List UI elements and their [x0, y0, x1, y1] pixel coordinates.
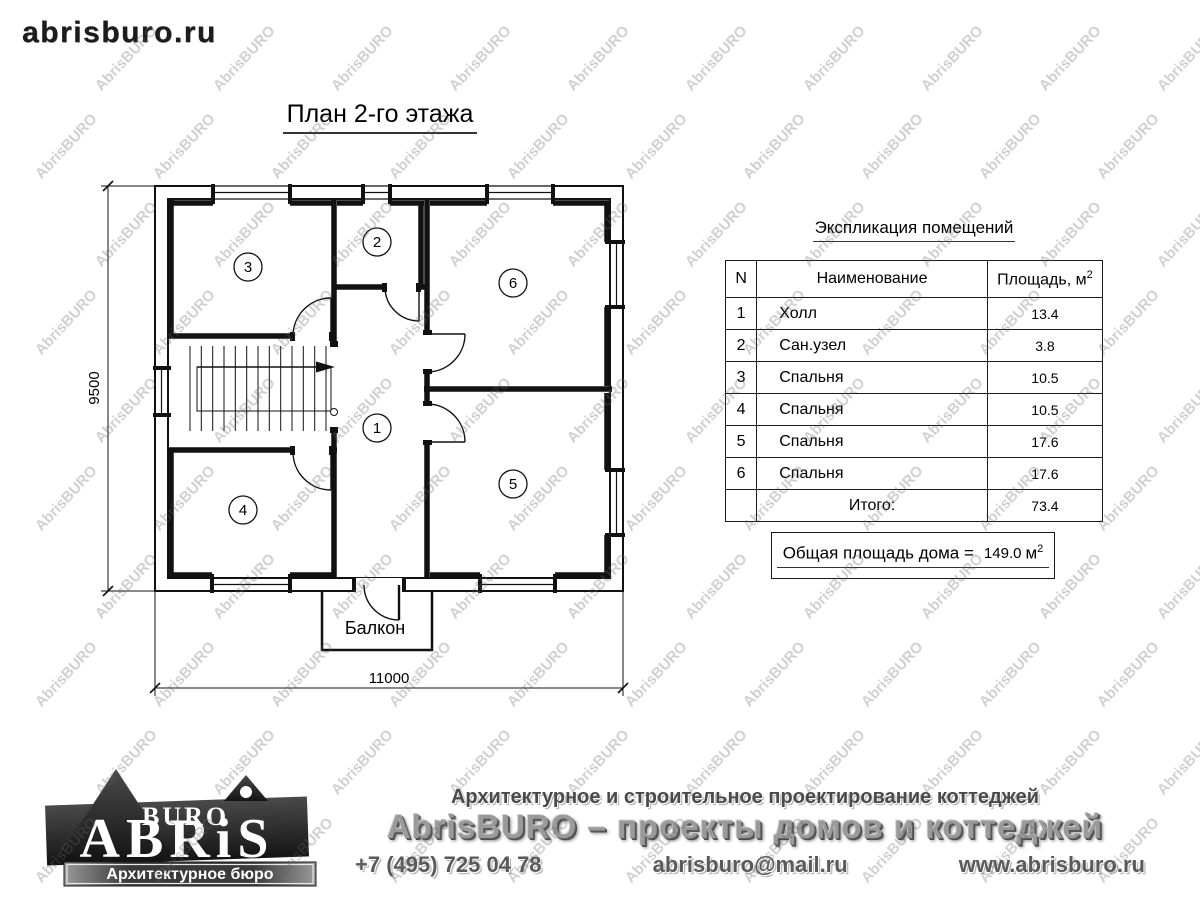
- explication-title: Экспликация помещений: [725, 218, 1103, 242]
- cell-name: Холл: [757, 298, 988, 330]
- cell-name: Сан.узел: [757, 330, 988, 362]
- cell-name: Спальня: [757, 362, 988, 394]
- cell-name: Спальня: [757, 394, 988, 426]
- room-number-1: 1: [373, 420, 381, 437]
- room-number-3: 3: [244, 259, 252, 276]
- cell-empty: [726, 490, 757, 522]
- total-area-box: Общая площадь дома =149.0м2: [771, 532, 1055, 579]
- total-label: Итого:: [757, 490, 988, 522]
- room-number-6: 6: [509, 275, 517, 292]
- page-title-text: План 2-го этажа: [283, 100, 478, 134]
- footer-email: abrisburo@mail.ru: [653, 852, 848, 878]
- header-name: Наименование: [757, 261, 988, 298]
- table-row: 1 Холл 13.4: [726, 298, 1103, 330]
- cell-n: 5: [726, 426, 757, 458]
- total-area-unit: м: [1025, 543, 1037, 562]
- table-row: 5 Спальня 17.6: [726, 426, 1103, 458]
- dim-height-label: 9500: [86, 371, 103, 404]
- cell-n: 1: [726, 298, 757, 330]
- cell-area: 17.6: [987, 426, 1102, 458]
- total-area-label: Общая площадь дома =: [783, 543, 974, 562]
- table-header-row: N Наименование Площадь, м2: [726, 261, 1103, 298]
- room-number-4: 4: [239, 502, 247, 519]
- room-number-2: 2: [373, 234, 381, 251]
- logo-tagline-text: Архитектурное бюро: [106, 866, 273, 883]
- table-row: 4 Спальня 10.5: [726, 394, 1103, 426]
- footer-website: www.abrisburo.ru: [959, 852, 1145, 878]
- cell-n: 4: [726, 394, 757, 426]
- balcony-label: Балкон: [345, 618, 405, 638]
- logo-i-dot: [240, 786, 252, 798]
- footer-headline: AbrisBURO – проекты домов и коттеджей: [340, 808, 1150, 846]
- header-area-sup: 2: [1087, 269, 1093, 281]
- table-row: 3 Спальня 10.5: [726, 362, 1103, 394]
- cell-n: 6: [726, 458, 757, 490]
- total-area-unit-sup: 2: [1037, 543, 1043, 555]
- cell-name: Спальня: [757, 458, 988, 490]
- footer-contacts: +7 (495) 725 04 78 abrisburo@mail.ru www…: [355, 852, 1145, 878]
- total-value: 73.4: [987, 490, 1102, 522]
- cell-area: 17.6: [987, 458, 1102, 490]
- site-logo: abrisburo.ru: [22, 16, 217, 50]
- cell-n: 3: [726, 362, 757, 394]
- table-row: 6 Спальня 17.6: [726, 458, 1103, 490]
- room-number-5: 5: [509, 476, 517, 493]
- cell-area: 10.5: [987, 394, 1102, 426]
- header-area-text: Площадь, м: [997, 271, 1087, 288]
- logo-main-text: ABRiS: [80, 808, 275, 870]
- header-n: N: [726, 261, 757, 298]
- dim-width-label: 11000: [369, 670, 410, 687]
- footer-tagline: Архитектурное и строительное проектирова…: [340, 786, 1150, 809]
- abris-logo: BURO ABRiS Архитектурное бюро: [30, 765, 322, 893]
- cell-area: 3.8: [987, 330, 1102, 362]
- cell-area: 10.5: [987, 362, 1102, 394]
- page: 1 2 3 4 5 6 Балкон 11000 9500 abrisburo.…: [0, 0, 1200, 900]
- footer-phone: +7 (495) 725 04 78: [355, 852, 542, 878]
- total-area-value: 149.0: [974, 545, 1026, 562]
- cell-n: 2: [726, 330, 757, 362]
- total-area-text: Общая площадь дома =149.0м2: [777, 543, 1050, 569]
- table-row: 2 Сан.узел 3.8: [726, 330, 1103, 362]
- table-total-row: Итого: 73.4: [726, 490, 1103, 522]
- header-area: Площадь, м2: [987, 261, 1102, 298]
- cell-area: 13.4: [987, 298, 1102, 330]
- explication-title-text: Экспликация помещений: [813, 218, 1016, 242]
- explication-table: N Наименование Площадь, м2 1 Холл 13.4 2…: [725, 260, 1103, 522]
- page-title: План 2-го этажа: [230, 100, 530, 134]
- cell-name: Спальня: [757, 426, 988, 458]
